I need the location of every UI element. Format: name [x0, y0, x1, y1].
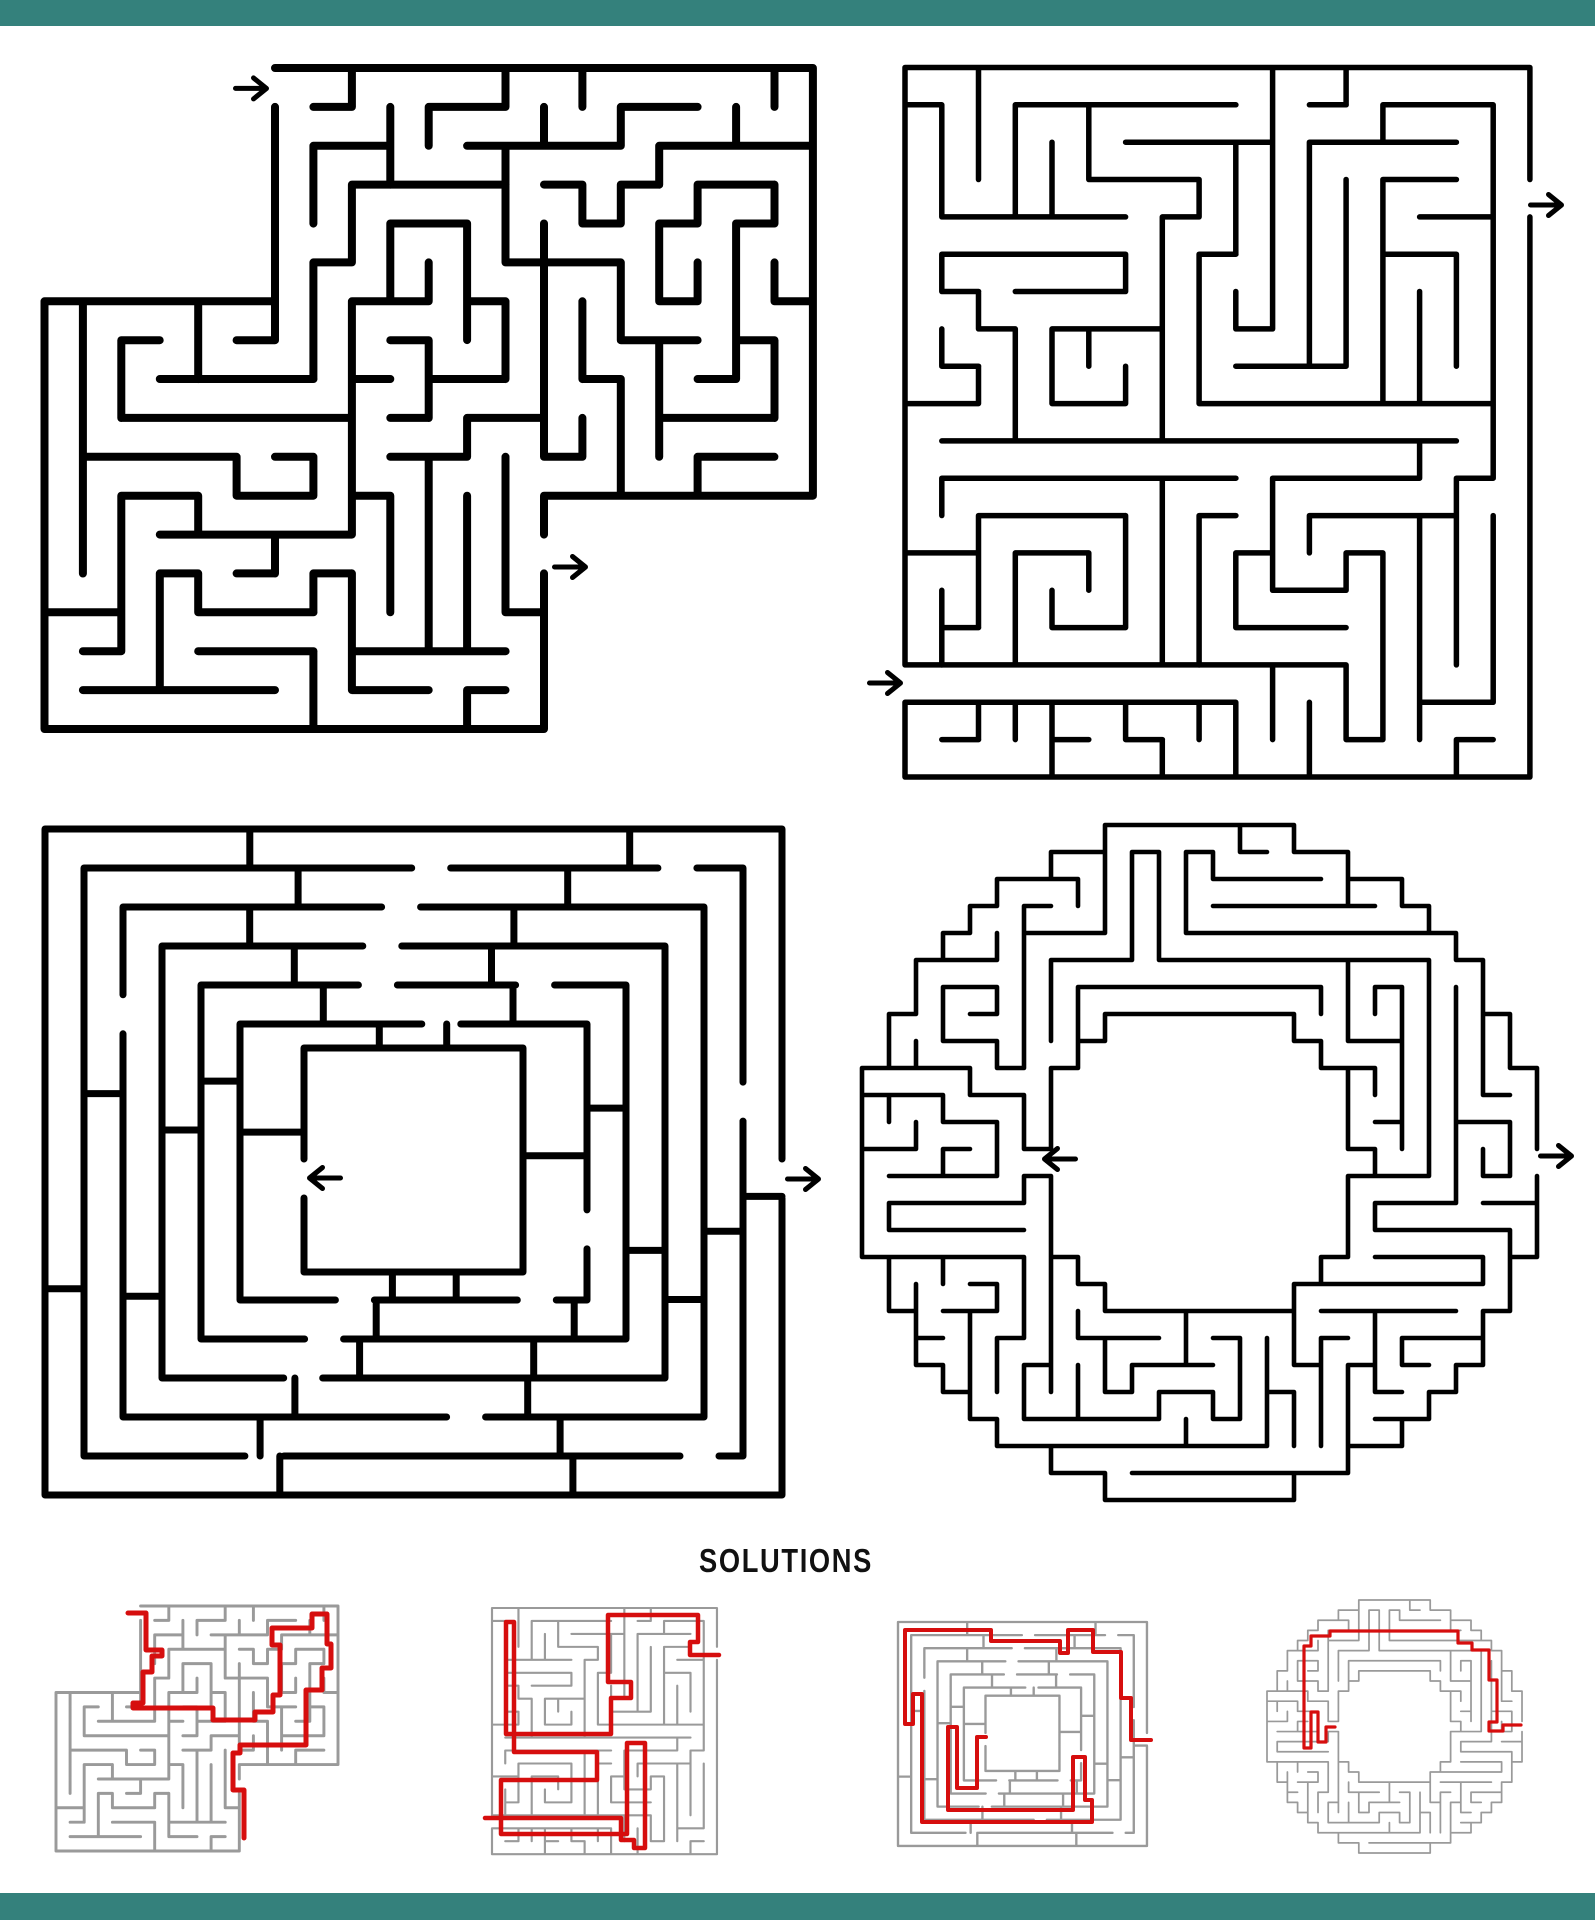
svg-text:SOLUTIONS: SOLUTIONS [699, 1542, 873, 1579]
